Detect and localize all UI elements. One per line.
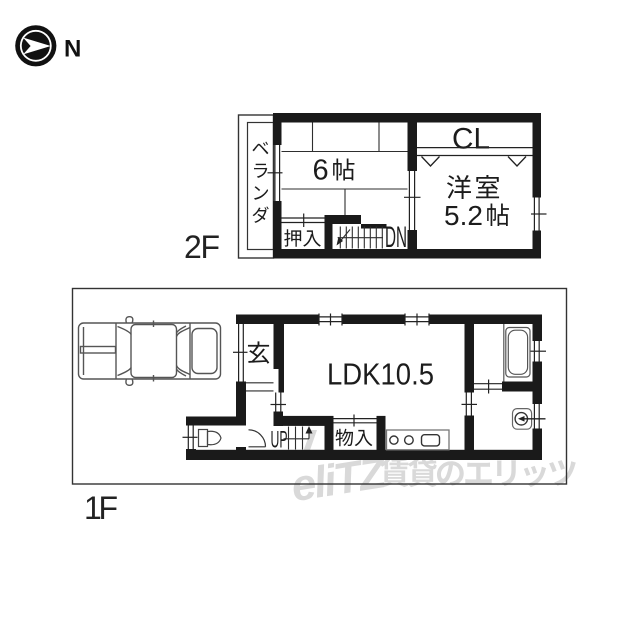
svg-text:LDK10.5: LDK10.5 — [327, 357, 434, 392]
svg-text:1F: 1F — [84, 490, 118, 526]
svg-text:6: 6 — [313, 155, 329, 187]
svg-text:UP: UP — [271, 427, 288, 454]
svg-text:CL: CL — [452, 123, 490, 156]
svg-text:N: N — [64, 36, 81, 63]
svg-text:2F: 2F — [184, 229, 220, 265]
svg-text:DN: DN — [385, 221, 407, 254]
svg-text:5.2: 5.2 — [444, 200, 483, 231]
